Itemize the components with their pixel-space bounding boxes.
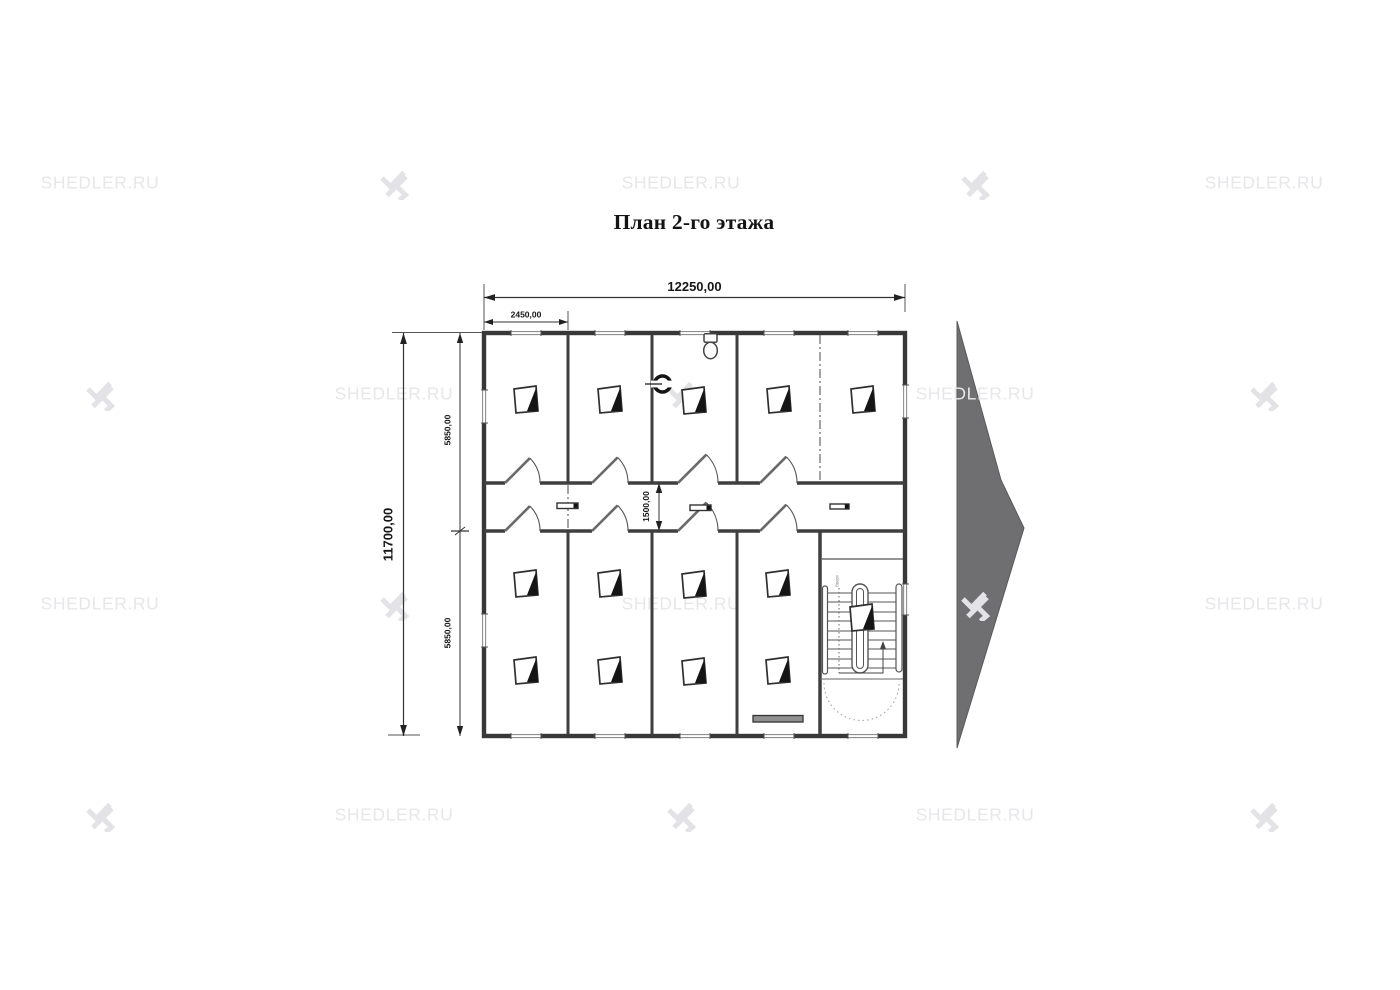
wall-fixture-icon [645,376,674,392]
dimension-corridor-width: 1500,00 [641,483,662,531]
up-arrow-icon [880,641,886,650]
stair-direction-label: Вверх [835,574,840,587]
dimension-overall-depth: 11700,00 [381,333,483,737]
stair-right-rail [896,584,902,672]
staircase: Вверх [820,559,903,721]
overall-width-label: 12250,00 [667,279,721,294]
corridor-light-icons [557,503,849,511]
railing-bar [753,716,803,723]
floor-plan-page: SHEDLER.RU SHEDLER.RU SHEDLER.RU SHEDLER… [0,0,1400,990]
toilet-icon [704,334,718,359]
corridor-width-label: 1500,00 [641,491,651,522]
dimension-room-depths: 5850,00 5850,00 [443,333,470,736]
stair-left-rail [823,586,828,674]
floor-plan-drawing: Вверх 12250,00 2450,00 11700,00 [0,0,1400,990]
top-rooms-depth-label: 5850,00 [443,414,453,445]
bay-width-label: 2450,00 [511,310,542,320]
stair-landing-arc [824,683,899,721]
overall-depth-label: 11700,00 [381,508,396,562]
dimension-bay-width: 2450,00 [484,310,568,331]
bottom-rooms-depth-label: 5850,00 [443,617,453,648]
axis-dashdot-lines [568,335,820,529]
